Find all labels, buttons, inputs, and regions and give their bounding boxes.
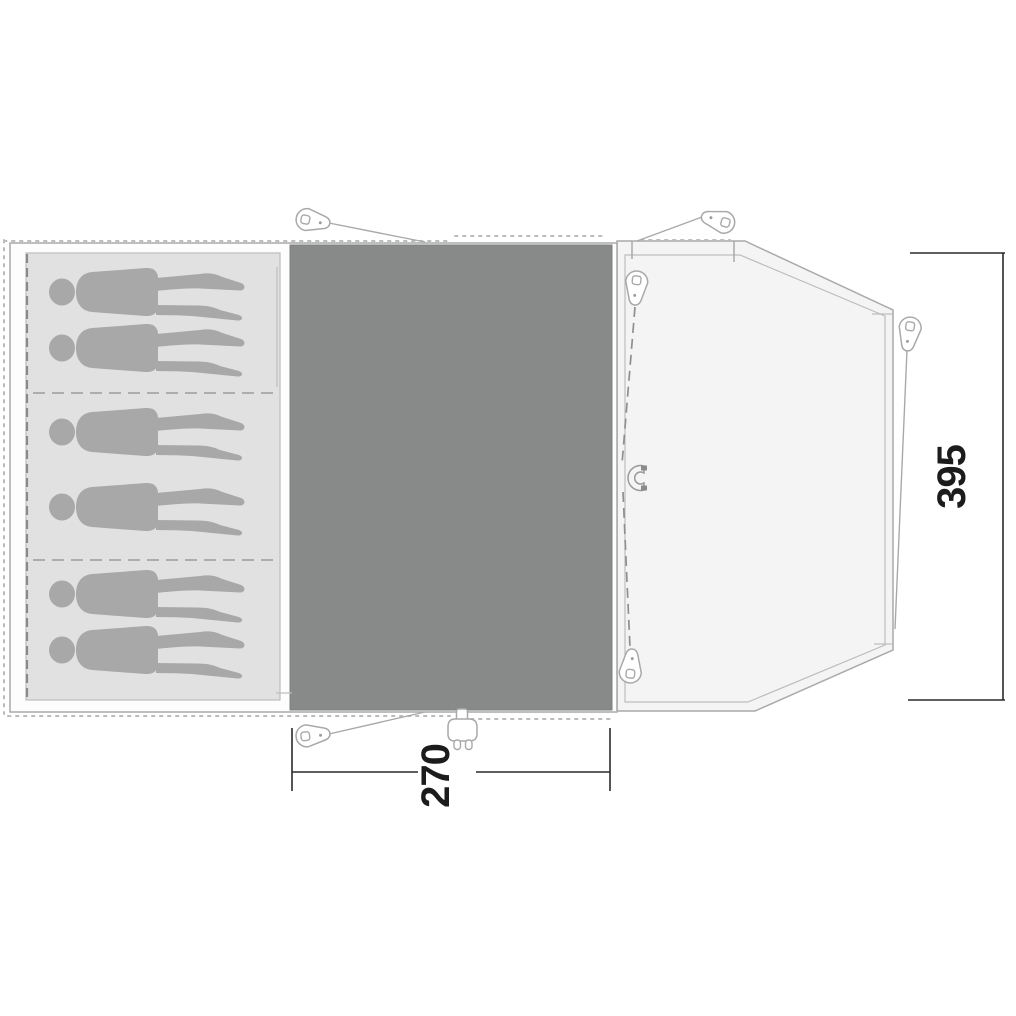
tent-floorplan-diagram: 270 395 (0, 0, 1016, 1016)
guy-line (329, 223, 425, 242)
power-plug-icon (448, 708, 477, 750)
living-room-floor (290, 245, 612, 710)
tent-peg-icon (295, 722, 331, 747)
tent-peg-icon (294, 207, 331, 235)
depth-dimension-label: 395 (930, 444, 974, 508)
depth-dimension: 395 (908, 253, 1005, 700)
guy-line (895, 350, 907, 629)
width-dimension-label: 270 (414, 744, 458, 808)
tent-peg-icon (699, 205, 738, 236)
front-porch (617, 240, 894, 711)
guy-line (637, 217, 702, 241)
sleeping-cabin (26, 253, 292, 700)
tent-peg-icon (896, 316, 923, 353)
